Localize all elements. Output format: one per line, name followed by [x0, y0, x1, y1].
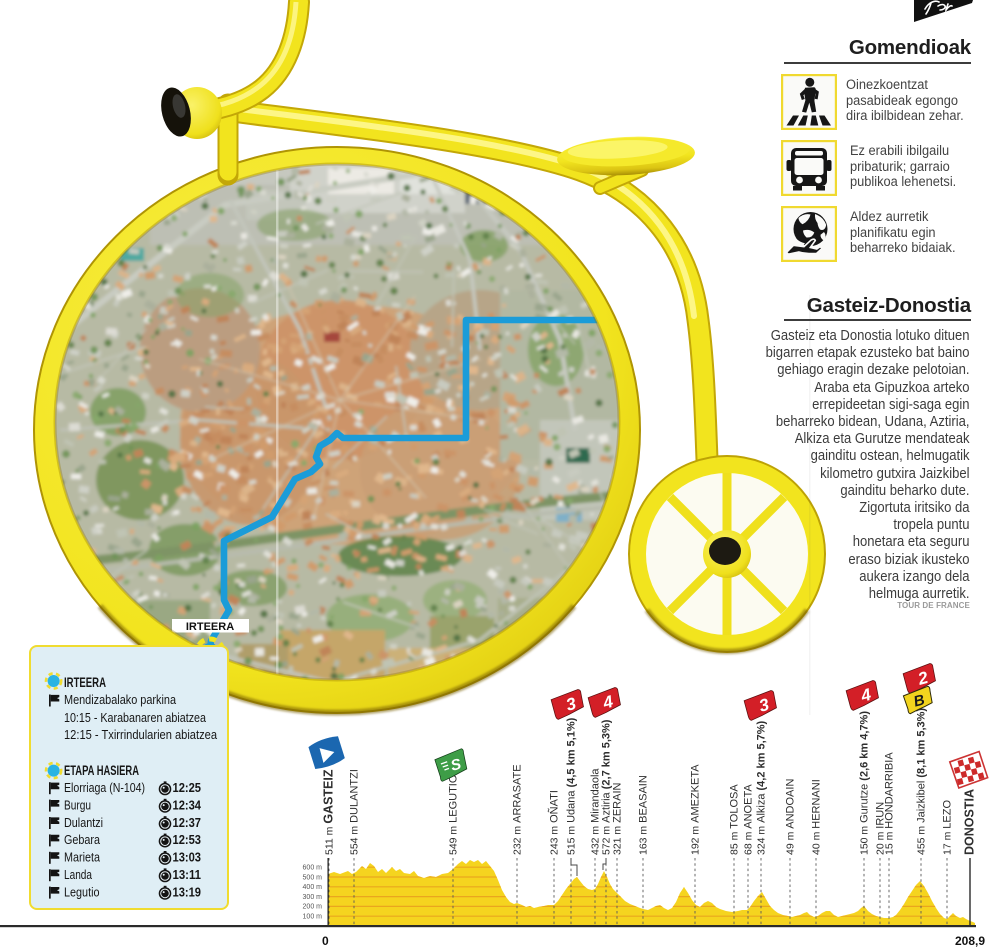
svg-text:Dulantzi: Dulantzi [64, 816, 103, 830]
svg-text:400 m: 400 m [303, 884, 323, 891]
svg-text:208,9: 208,9 [955, 934, 985, 948]
svg-text:321 m ZERAIN: 321 m ZERAIN [612, 782, 624, 855]
svg-text:192 m AMEZKETA: 192 m AMEZKETA [690, 764, 702, 855]
svg-text:17 m LEZO: 17 m LEZO [942, 800, 954, 855]
svg-text:12:53: 12:53 [173, 833, 202, 847]
svg-text:IRTEERA: IRTEERA [186, 621, 234, 633]
svg-text:Legutio: Legutio [64, 885, 100, 899]
svg-text:150 m Gurutze (2,6 km 4,7%): 150 m Gurutze (2,6 km 4,7%) [859, 711, 871, 855]
svg-text:500 m: 500 m [303, 874, 323, 881]
svg-text:68 m ANOETA: 68 m ANOETA [743, 784, 755, 855]
svg-text:DONOSTIA: DONOSTIA [963, 789, 977, 855]
svg-text:0: 0 [322, 934, 329, 948]
svg-text:13:11: 13:11 [173, 868, 202, 882]
svg-text:Elorriaga (N-104): Elorriaga (N-104) [64, 781, 145, 795]
svg-text:163 m BEASAIN: 163 m BEASAIN [638, 775, 650, 855]
svg-text:200 m: 200 m [303, 904, 323, 911]
svg-text:13:19: 13:19 [173, 885, 202, 899]
svg-text:85 m TOLOSA: 85 m TOLOSA [729, 784, 741, 855]
svg-text:10:15 - Karabanaren abiatzea: 10:15 - Karabanaren abiatzea [64, 711, 207, 725]
svg-text:12:37: 12:37 [173, 816, 202, 830]
svg-text:554 m DULANTZI: 554 m DULANTZI [349, 769, 361, 855]
svg-text:13:03: 13:03 [173, 851, 202, 865]
svg-text:455 m Jaizkibel (8,1 km 5,3%): 455 m Jaizkibel (8,1 km 5,3%) [916, 708, 928, 855]
svg-text:15 m HONDARRIBIA: 15 m HONDARRIBIA [884, 752, 896, 855]
svg-text:Mendizabalako parkina: Mendizabalako parkina [64, 693, 177, 707]
svg-text:549 m LEGUTIO: 549 m LEGUTIO [448, 774, 460, 855]
svg-text:600 m: 600 m [303, 865, 323, 872]
svg-text:Gebara: Gebara [64, 833, 101, 847]
svg-text:243 m OÑATI: 243 m OÑATI [548, 790, 561, 855]
svg-text:49 m ANDOAIN: 49 m ANDOAIN [785, 779, 797, 855]
svg-text:IRTEERA: IRTEERA [64, 675, 106, 690]
svg-text:ETAPA HASIERA: ETAPA HASIERA [64, 763, 139, 778]
svg-text:232 m ARRASATE: 232 m ARRASATE [512, 764, 524, 855]
svg-text:Burgu: Burgu [64, 798, 91, 812]
svg-text:12:34: 12:34 [173, 798, 202, 812]
svg-text:Landa: Landa [64, 868, 93, 882]
svg-text:324 m Alkiza (4,2 km 5,7%): 324 m Alkiza (4,2 km 5,7%) [756, 720, 768, 855]
svg-text:12:15 - Txirrindularien abiatz: 12:15 - Txirrindularien abiatzea [64, 728, 218, 742]
svg-text:300 m: 300 m [303, 894, 323, 901]
svg-text:511 m GASTEIZ: 511 m GASTEIZ [322, 769, 336, 855]
svg-text:515 m Udana (4,5 km 5,1%): 515 m Udana (4,5 km 5,1%) [566, 717, 578, 855]
svg-text:Marieta: Marieta [64, 851, 101, 865]
svg-text:100 m: 100 m [303, 914, 323, 921]
svg-text:40 m HERNANI: 40 m HERNANI [811, 779, 823, 855]
svg-text:12:25: 12:25 [173, 781, 202, 795]
